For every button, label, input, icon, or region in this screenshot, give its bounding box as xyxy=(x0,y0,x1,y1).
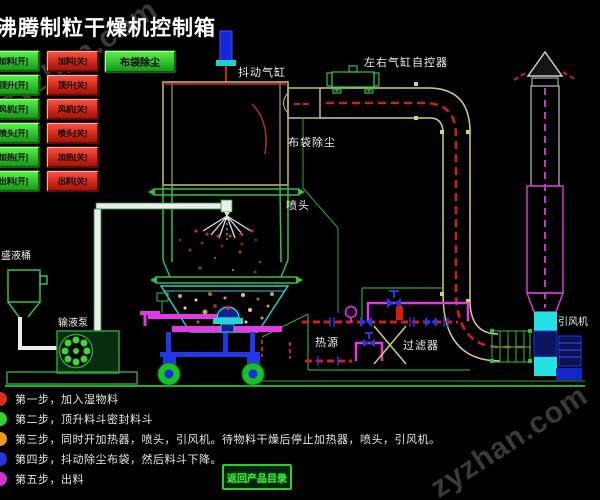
heat-off-button[interactable]: 加热[关] xyxy=(46,146,99,168)
bag-dust-button[interactable]: 布袋除尘 xyxy=(104,50,176,73)
step-4: 第四步，抖动除尘布袋，然后料斗下降。 xyxy=(0,450,222,468)
step-4-text: 第四步，抖动除尘布袋，然后料斗下降。 xyxy=(15,451,222,467)
feed-off-button[interactable]: 加料[关] xyxy=(46,50,99,72)
fan-on-button[interactable]: 风机[开] xyxy=(0,98,40,120)
step-4-bullet xyxy=(0,452,7,466)
bag-dust-label: 布袋除尘 xyxy=(288,134,336,150)
cylinder-controller-device xyxy=(327,66,379,93)
heat-source-label: 热源 xyxy=(315,334,339,350)
step-3-text: 第三步，同时开加热器，喷头，引风机。待物料干燥后停止加热器，喷头，引风机。 xyxy=(15,431,441,447)
step-2-bullet xyxy=(0,412,7,426)
shake-cylinder-graphic xyxy=(216,31,236,82)
heater-enclosure-frame xyxy=(262,288,470,370)
spray-off-button[interactable]: 喷头[关] xyxy=(46,122,99,144)
return-catalog-button[interactable]: 返回产品目录 xyxy=(222,464,292,490)
filter-label: 过滤器 xyxy=(403,337,439,353)
step-1: 第一步，加入湿物料 xyxy=(0,390,119,408)
liquid-tank-graphic xyxy=(8,270,58,348)
drying-vessel xyxy=(163,82,288,185)
lift-off-button[interactable]: 顶升[关] xyxy=(46,74,99,96)
lift-on-button[interactable]: 顶升[开] xyxy=(0,74,40,96)
bypass-valves xyxy=(346,291,469,364)
hmi-screen: zyzhan.com zyzhan.com 沸腾制粒干燥机控制箱 布袋除尘 加料… xyxy=(0,0,600,500)
discharge-off-button[interactable]: 出料[关] xyxy=(46,170,99,192)
draft-fan-label: 引风机 xyxy=(558,313,588,328)
liquid-pump-label: 输液泵 xyxy=(58,314,88,329)
step-3-bullet xyxy=(0,432,7,446)
discharge-on-button[interactable]: 出料[开] xyxy=(0,170,40,192)
spray-head-label: 喷头 xyxy=(286,197,310,213)
step-5-bullet xyxy=(0,472,7,486)
spray-on-button[interactable]: 喷头[开] xyxy=(0,122,40,144)
exhaust-stack xyxy=(514,52,576,312)
step-2: 第二步，顶升料斗密封料斗 xyxy=(0,410,153,428)
step-1-bullet xyxy=(0,392,7,406)
step-5: 第五步，出料 xyxy=(0,470,84,488)
liquid-pump-graphic xyxy=(7,331,137,384)
lr-cylinder-controller-label: 左右气缸自控器 xyxy=(364,54,448,70)
feed-on-button[interactable]: 加料[开] xyxy=(0,50,40,72)
fan-off-button[interactable]: 风机[关] xyxy=(46,98,99,120)
shake-cylinder-label: 抖动气缸 xyxy=(238,64,286,80)
step-5-text: 第五步，出料 xyxy=(15,471,84,487)
step-1-text: 第一步，加入湿物料 xyxy=(15,391,119,407)
page-title: 沸腾制粒干燥机控制箱 xyxy=(0,12,216,42)
heat-on-button[interactable]: 加热[开] xyxy=(0,146,40,168)
liquid-tank-label: 盛液桶 xyxy=(1,247,31,262)
step-3: 第三步，同时开加热器，喷头，引风机。待物料干燥后停止加热器，喷头，引风机。 xyxy=(0,430,441,448)
step-2-text: 第二步，顶升料斗密封料斗 xyxy=(15,411,153,427)
